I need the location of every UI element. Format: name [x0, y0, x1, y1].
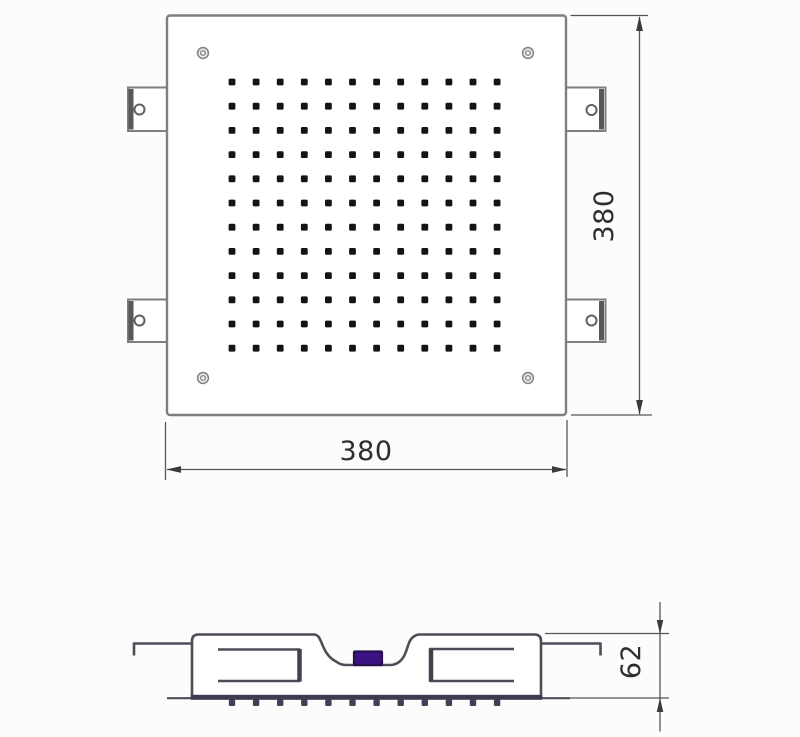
nozzle-tick	[325, 700, 331, 707]
spray-hole	[253, 248, 260, 255]
nozzle-tick	[277, 700, 283, 707]
spray-hole	[349, 79, 356, 86]
spray-hole	[421, 127, 428, 134]
spray-hole	[421, 272, 428, 279]
nozzle-tick	[301, 700, 307, 707]
body-section-outline	[192, 635, 541, 699]
spray-hole	[494, 296, 501, 303]
spray-hole	[325, 321, 332, 328]
dimension-height: 380	[571, 16, 653, 416]
spray-hole	[470, 224, 477, 231]
nozzle-tick	[373, 700, 379, 707]
spray-hole	[253, 272, 260, 279]
spray-hole	[253, 151, 260, 158]
spray-hole	[373, 175, 380, 182]
spray-hole	[301, 175, 308, 182]
spray-hole	[277, 127, 284, 134]
spray-hole	[325, 224, 332, 231]
spray-hole	[349, 224, 356, 231]
tab-edge	[599, 301, 604, 341]
tab-screw-hole	[135, 316, 145, 326]
spray-hole	[229, 79, 236, 86]
spray-hole	[325, 200, 332, 207]
spray-hole	[229, 345, 236, 352]
tab-edge	[129, 301, 134, 341]
spray-hole	[470, 248, 477, 255]
spray-hole	[446, 296, 453, 303]
spray-hole	[470, 103, 477, 110]
spray-hole	[397, 248, 404, 255]
nozzle-tick	[494, 700, 500, 707]
spray-hole	[421, 103, 428, 110]
nozzle-row	[229, 700, 501, 707]
nozzle-tick	[229, 700, 235, 707]
spray-hole	[277, 248, 284, 255]
spray-hole	[229, 224, 236, 231]
spray-hole	[349, 151, 356, 158]
spray-hole	[301, 272, 308, 279]
arrowhead-up-icon	[657, 698, 664, 712]
spray-hole	[277, 103, 284, 110]
spray-hole	[421, 345, 428, 352]
spray-hole	[397, 175, 404, 182]
spray-hole	[397, 200, 404, 207]
spray-hole	[494, 175, 501, 182]
spray-hole	[470, 175, 477, 182]
spray-hole	[325, 248, 332, 255]
spray-hole	[421, 248, 428, 255]
spray-hole	[301, 296, 308, 303]
spray-hole	[470, 200, 477, 207]
spray-hole	[470, 151, 477, 158]
spray-hole	[253, 127, 260, 134]
spray-hole	[349, 296, 356, 303]
screw-icon	[523, 373, 534, 384]
spray-hole	[325, 151, 332, 158]
spray-hole	[373, 200, 380, 207]
spray-hole	[325, 345, 332, 352]
spray-hole	[421, 175, 428, 182]
spray-hole	[229, 248, 236, 255]
spray-hole	[446, 224, 453, 231]
side-view: 62	[134, 602, 669, 732]
spray-hole	[373, 127, 380, 134]
spray-hole	[470, 79, 477, 86]
tab-edge	[129, 89, 134, 130]
spray-hole	[301, 127, 308, 134]
mounting-tab-top-right	[566, 88, 606, 132]
spray-hole	[494, 345, 501, 352]
technical-drawing-svg: 380 380	[0, 0, 800, 737]
spray-hole	[277, 345, 284, 352]
mounting-tab-bottom-left	[128, 300, 168, 343]
spray-hole	[253, 200, 260, 207]
spray-hole	[446, 321, 453, 328]
spray-hole	[277, 296, 284, 303]
spray-hole	[253, 224, 260, 231]
spray-hole	[301, 321, 308, 328]
tab-edge	[599, 89, 604, 130]
spray-hole	[301, 345, 308, 352]
dimension-side-height: 62	[545, 602, 669, 732]
spray-hole	[325, 127, 332, 134]
spray-hole	[229, 127, 236, 134]
spray-hole	[373, 248, 380, 255]
spray-hole	[397, 103, 404, 110]
nozzle-tick	[422, 700, 428, 707]
tab-screw-hole	[587, 316, 597, 326]
nozzle-tick	[470, 700, 476, 707]
spray-hole	[446, 175, 453, 182]
spray-hole	[325, 103, 332, 110]
spray-hole	[277, 321, 284, 328]
spray-hole	[397, 79, 404, 86]
height-dimension-label: 380	[589, 189, 620, 242]
spray-hole	[349, 200, 356, 207]
spray-hole	[373, 151, 380, 158]
spray-hole	[421, 200, 428, 207]
spray-hole	[446, 345, 453, 352]
arrowhead-left-icon	[167, 466, 182, 473]
mount-hook-right	[541, 644, 601, 656]
spray-hole	[470, 127, 477, 134]
spray-hole	[229, 175, 236, 182]
spray-face-band	[191, 695, 542, 700]
spray-hole	[446, 272, 453, 279]
spray-hole	[301, 103, 308, 110]
arrowhead-down-icon	[636, 400, 643, 415]
nozzle-tick	[446, 700, 452, 707]
corner-screw-top-left	[198, 48, 209, 59]
mounting-tab-top-left	[128, 88, 168, 132]
spray-hole	[397, 272, 404, 279]
corner-screw-bottom-right	[523, 373, 534, 384]
spray-hole	[421, 224, 428, 231]
spray-hole	[446, 79, 453, 86]
spray-hole	[397, 321, 404, 328]
dimension-width: 380	[166, 420, 568, 480]
spray-hole	[349, 248, 356, 255]
spray-hole	[373, 345, 380, 352]
spray-hole	[229, 151, 236, 158]
spray-hole	[397, 345, 404, 352]
spray-hole	[446, 151, 453, 158]
spray-hole	[229, 200, 236, 207]
spray-hole	[446, 103, 453, 110]
spray-hole	[301, 248, 308, 255]
water-inlet-connector	[354, 652, 382, 666]
spray-hole	[421, 79, 428, 86]
corner-screw-top-right	[523, 48, 534, 59]
spray-hole	[277, 151, 284, 158]
spray-hole	[277, 224, 284, 231]
spray-hole	[325, 272, 332, 279]
spray-hole	[277, 79, 284, 86]
spray-hole	[229, 272, 236, 279]
spray-hole	[349, 345, 356, 352]
spray-hole	[349, 321, 356, 328]
spray-hole	[253, 345, 260, 352]
spray-hole	[277, 200, 284, 207]
spray-hole	[397, 224, 404, 231]
spray-hole	[253, 175, 260, 182]
screw-icon	[198, 373, 209, 384]
spray-hole	[446, 200, 453, 207]
spray-hole	[494, 151, 501, 158]
spray-hole	[470, 296, 477, 303]
spray-hole	[446, 127, 453, 134]
spray-hole	[373, 224, 380, 231]
spray-hole	[301, 79, 308, 86]
spray-hole	[373, 296, 380, 303]
nozzle-tick	[398, 700, 404, 707]
spray-hole	[349, 127, 356, 134]
spray-hole	[494, 321, 501, 328]
mount-hook-left	[134, 644, 192, 656]
drawing-canvas: 380 380	[0, 0, 800, 737]
width-dimension-label: 380	[339, 436, 392, 467]
spray-hole	[494, 79, 501, 86]
spray-hole	[494, 272, 501, 279]
spray-hole	[397, 151, 404, 158]
spray-hole	[494, 200, 501, 207]
spray-hole	[373, 79, 380, 86]
screw-icon	[198, 48, 209, 59]
spray-hole	[229, 103, 236, 110]
spray-hole	[470, 345, 477, 352]
spray-hole	[229, 296, 236, 303]
nozzle-tick	[253, 700, 259, 707]
spray-hole	[349, 175, 356, 182]
spray-hole	[397, 296, 404, 303]
spray-hole	[277, 272, 284, 279]
spray-hole	[470, 321, 477, 328]
mounting-tab-bottom-right	[566, 300, 606, 343]
side-height-dimension-label: 62	[616, 644, 647, 679]
spray-hole	[301, 200, 308, 207]
spray-hole	[494, 224, 501, 231]
spray-hole	[301, 224, 308, 231]
spray-hole	[349, 272, 356, 279]
spray-hole	[494, 103, 501, 110]
spray-hole	[253, 79, 260, 86]
nozzle-tick	[349, 700, 355, 707]
spray-hole	[301, 151, 308, 158]
spray-hole	[446, 248, 453, 255]
spray-hole	[253, 296, 260, 303]
screw-icon	[523, 48, 534, 59]
spray-hole	[325, 79, 332, 86]
tab-screw-hole	[135, 105, 145, 115]
spray-hole	[470, 272, 477, 279]
tab-screw-hole	[587, 105, 597, 115]
spray-hole	[229, 321, 236, 328]
spray-hole	[325, 175, 332, 182]
spray-hole	[253, 321, 260, 328]
spray-hole	[494, 127, 501, 134]
spray-hole	[373, 321, 380, 328]
spray-hole	[253, 103, 260, 110]
spray-hole	[421, 321, 428, 328]
spray-hole	[421, 151, 428, 158]
top-view: 380 380	[128, 16, 652, 481]
spray-hole	[349, 103, 356, 110]
spray-hole	[421, 296, 428, 303]
spray-hole	[277, 175, 284, 182]
shower-plate	[167, 16, 566, 416]
arrowhead-down-icon	[657, 620, 664, 634]
spray-hole	[494, 248, 501, 255]
arrowhead-right-icon	[552, 466, 567, 473]
spray-hole	[373, 103, 380, 110]
spray-hole	[397, 127, 404, 134]
spray-hole	[373, 272, 380, 279]
corner-screw-bottom-left	[198, 373, 209, 384]
spray-hole	[325, 296, 332, 303]
arrowhead-up-icon	[636, 16, 643, 31]
